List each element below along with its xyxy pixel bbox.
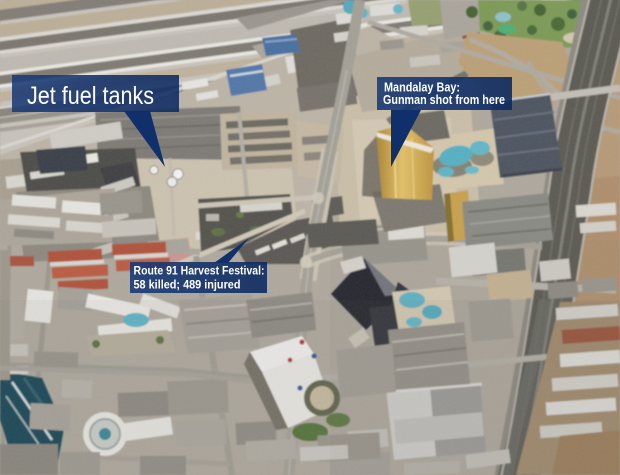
svg-text:Jet fuel tanks: Jet fuel tanks (27, 82, 154, 110)
svg-text:Gunman shot from here: Gunman shot from here (383, 93, 505, 107)
svg-text:Route 91 Harvest Festival:: Route 91 Harvest Festival: (134, 264, 265, 278)
svg-text:58 killed; 489 injured: 58 killed; 489 injured (134, 278, 241, 292)
